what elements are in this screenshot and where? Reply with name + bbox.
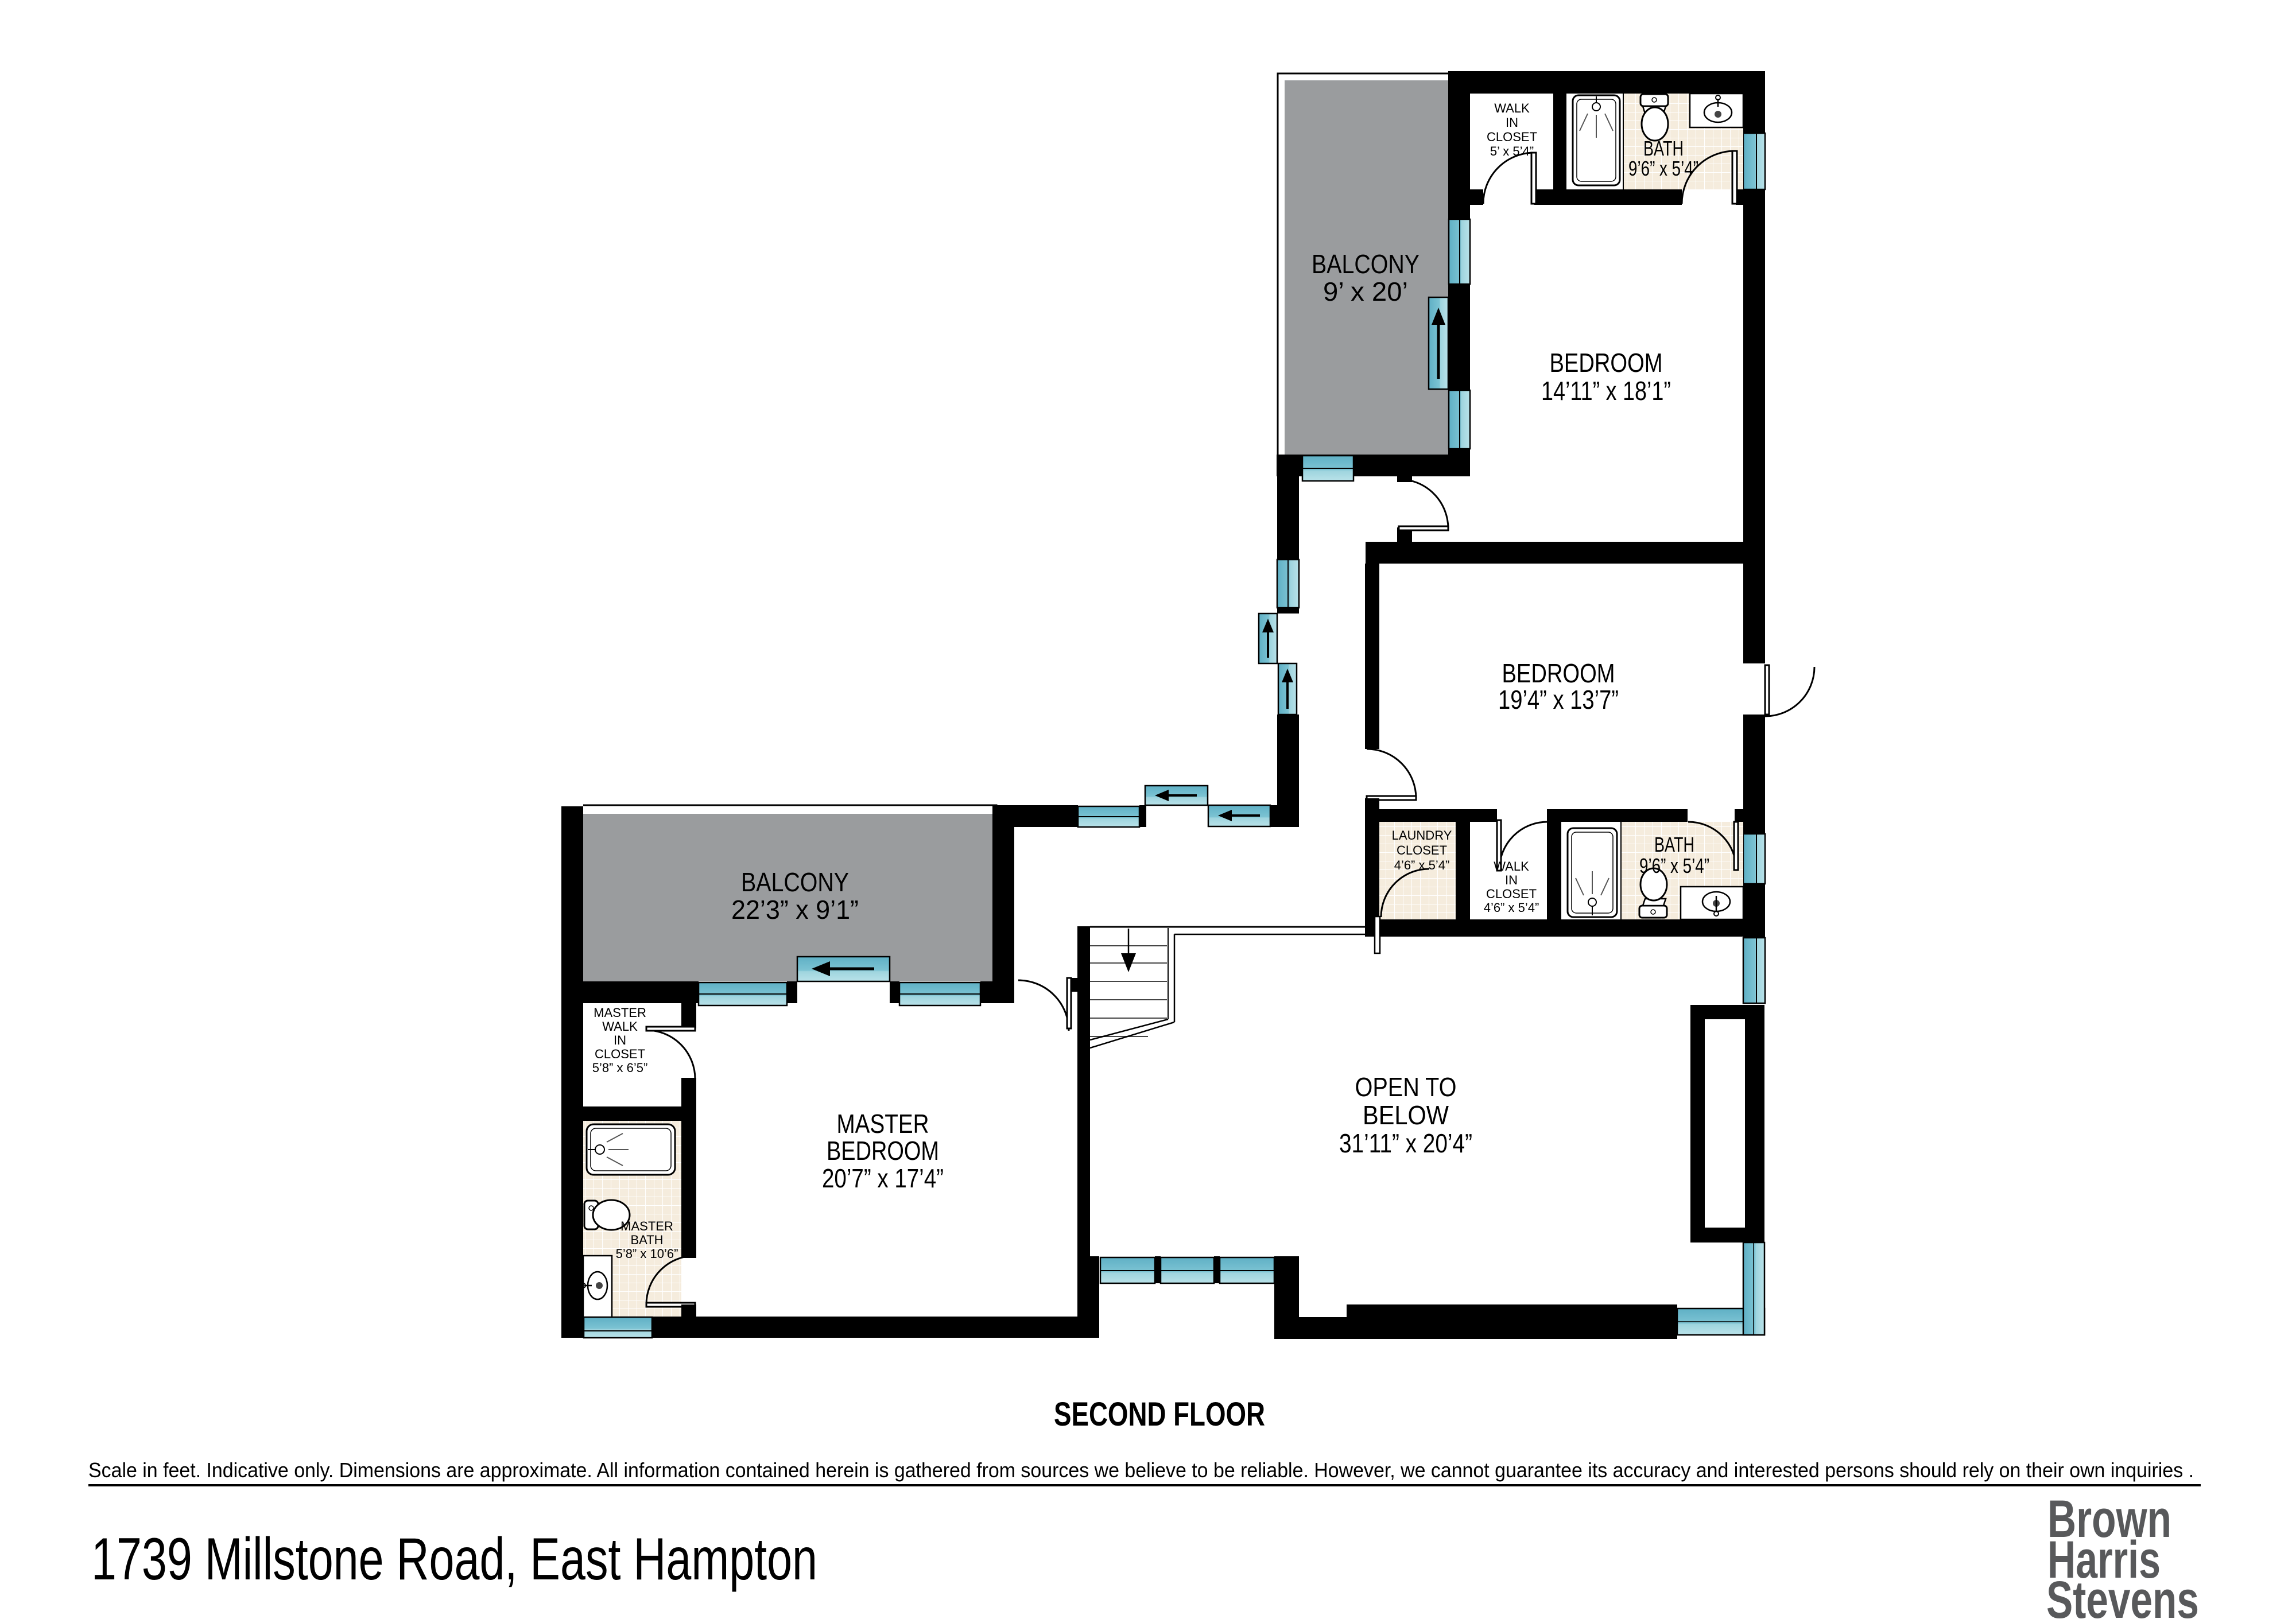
svg-text:CLOSET: CLOSET xyxy=(1486,887,1537,901)
svg-text:31’11” x 20’4”: 31’11” x 20’4” xyxy=(1339,1128,1472,1158)
svg-text:BEDROOM: BEDROOM xyxy=(827,1136,939,1166)
svg-text:Scale in feet. Indicative only: Scale in feet. Indicative only. Dimensio… xyxy=(88,1458,2194,1482)
svg-text:BALCONY: BALCONY xyxy=(741,867,849,897)
svg-text:BATH: BATH xyxy=(630,1233,663,1247)
svg-text:MASTER: MASTER xyxy=(837,1109,929,1139)
svg-text:1739 Millstone Road, East Hamp: 1739 Millstone Road, East Hampton xyxy=(91,1526,817,1593)
svg-text:4’6” x 5’4”: 4’6” x 5’4” xyxy=(1484,900,1539,915)
svg-text:SECOND FLOOR: SECOND FLOOR xyxy=(1054,1396,1265,1433)
svg-text:BEDROOM: BEDROOM xyxy=(1550,348,1663,378)
svg-text:4’6” x 5’4”: 4’6” x 5’4” xyxy=(1394,858,1450,872)
svg-text:CLOSET: CLOSET xyxy=(1487,130,1537,144)
svg-text:CLOSET: CLOSET xyxy=(1397,843,1447,857)
svg-text:19’4” x 13’7”: 19’4” x 13’7” xyxy=(1498,685,1619,715)
svg-text:Stevens: Stevens xyxy=(2046,1571,2199,1623)
svg-text:LAUNDRY: LAUNDRY xyxy=(1392,828,1452,842)
svg-text:BEDROOM: BEDROOM xyxy=(1502,658,1615,688)
svg-text:9’ x 20’: 9’ x 20’ xyxy=(1323,277,1408,306)
svg-text:IN: IN xyxy=(1505,873,1518,887)
svg-text:CLOSET: CLOSET xyxy=(595,1047,645,1061)
svg-text:5’8” x 10’6”: 5’8” x 10’6” xyxy=(616,1247,678,1261)
svg-text:9’6” x 5’4”: 9’6” x 5’4” xyxy=(1639,854,1709,877)
svg-text:WALK: WALK xyxy=(1494,859,1529,873)
svg-text:5’ x 5’4”: 5’ x 5’4” xyxy=(1490,144,1534,158)
svg-text:22’3” x 9’1”: 22’3” x 9’1” xyxy=(731,895,859,925)
svg-text:5’8” x 6’5”: 5’8” x 6’5” xyxy=(592,1061,648,1075)
svg-text:BATH: BATH xyxy=(1654,833,1694,856)
svg-text:20’7” x 17’4”: 20’7” x 17’4” xyxy=(822,1163,944,1193)
svg-text:WALK: WALK xyxy=(602,1019,638,1034)
svg-text:IN: IN xyxy=(1506,115,1518,130)
svg-text:MASTER: MASTER xyxy=(620,1219,673,1233)
svg-text:BELOW: BELOW xyxy=(1363,1100,1449,1130)
svg-text:OPEN TO: OPEN TO xyxy=(1355,1072,1457,1102)
svg-text:MASTER: MASTER xyxy=(594,1005,646,1020)
svg-text:BALCONY: BALCONY xyxy=(1312,249,1420,279)
svg-text:9’6” x 5’4”: 9’6” x 5’4” xyxy=(1628,157,1698,180)
svg-text:IN: IN xyxy=(614,1033,626,1047)
svg-text:WALK: WALK xyxy=(1494,101,1530,115)
svg-text:14’11” x 18’1”: 14’11” x 18’1” xyxy=(1541,376,1671,406)
